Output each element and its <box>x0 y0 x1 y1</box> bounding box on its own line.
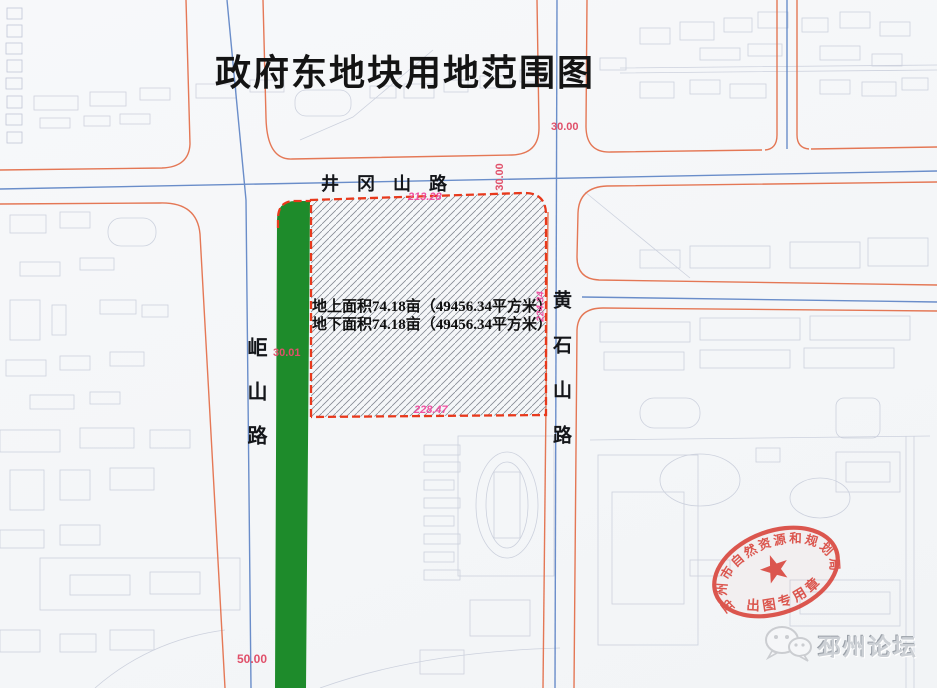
forum-watermark: 邳州论坛 <box>762 624 918 666</box>
land-use-map-page: 邳州市自然资源和规划局 出图专用章 政府东地块用地范围图 井冈山路 岠山路 黄石… <box>0 0 937 688</box>
dim-offset-bottom: 50.00 <box>237 652 267 666</box>
wechat-icon <box>762 624 814 666</box>
plot-area-below-ground: 地下面积74.18亩（49456.34平方米） <box>312 313 552 334</box>
dim-road-width-horizontal: 30.00 <box>494 155 506 199</box>
dim-plot-bottom: 228.47 <box>414 404 448 416</box>
dim-plot-right: 224.34 <box>536 285 547 329</box>
cadastral-map-canvas: 邳州市自然资源和规划局 出图专用章 <box>0 0 937 688</box>
greenbelt-strip <box>275 201 310 688</box>
watermark-text: 邳州论坛 <box>818 628 918 662</box>
dim-plot-top: 213.28 <box>408 191 442 203</box>
road-label-jushan: 岠山路 <box>241 337 270 469</box>
dim-road-width-vertical: 30.00 <box>551 121 579 133</box>
official-seal: 邳州市自然资源和规划局 出图专用章 <box>700 511 852 633</box>
dim-greenbelt-width: 30.01 <box>273 347 301 359</box>
road-label-jinggangshan: 井冈山路 <box>321 170 465 196</box>
page-title: 政府东地块用地范围图 <box>215 44 595 96</box>
